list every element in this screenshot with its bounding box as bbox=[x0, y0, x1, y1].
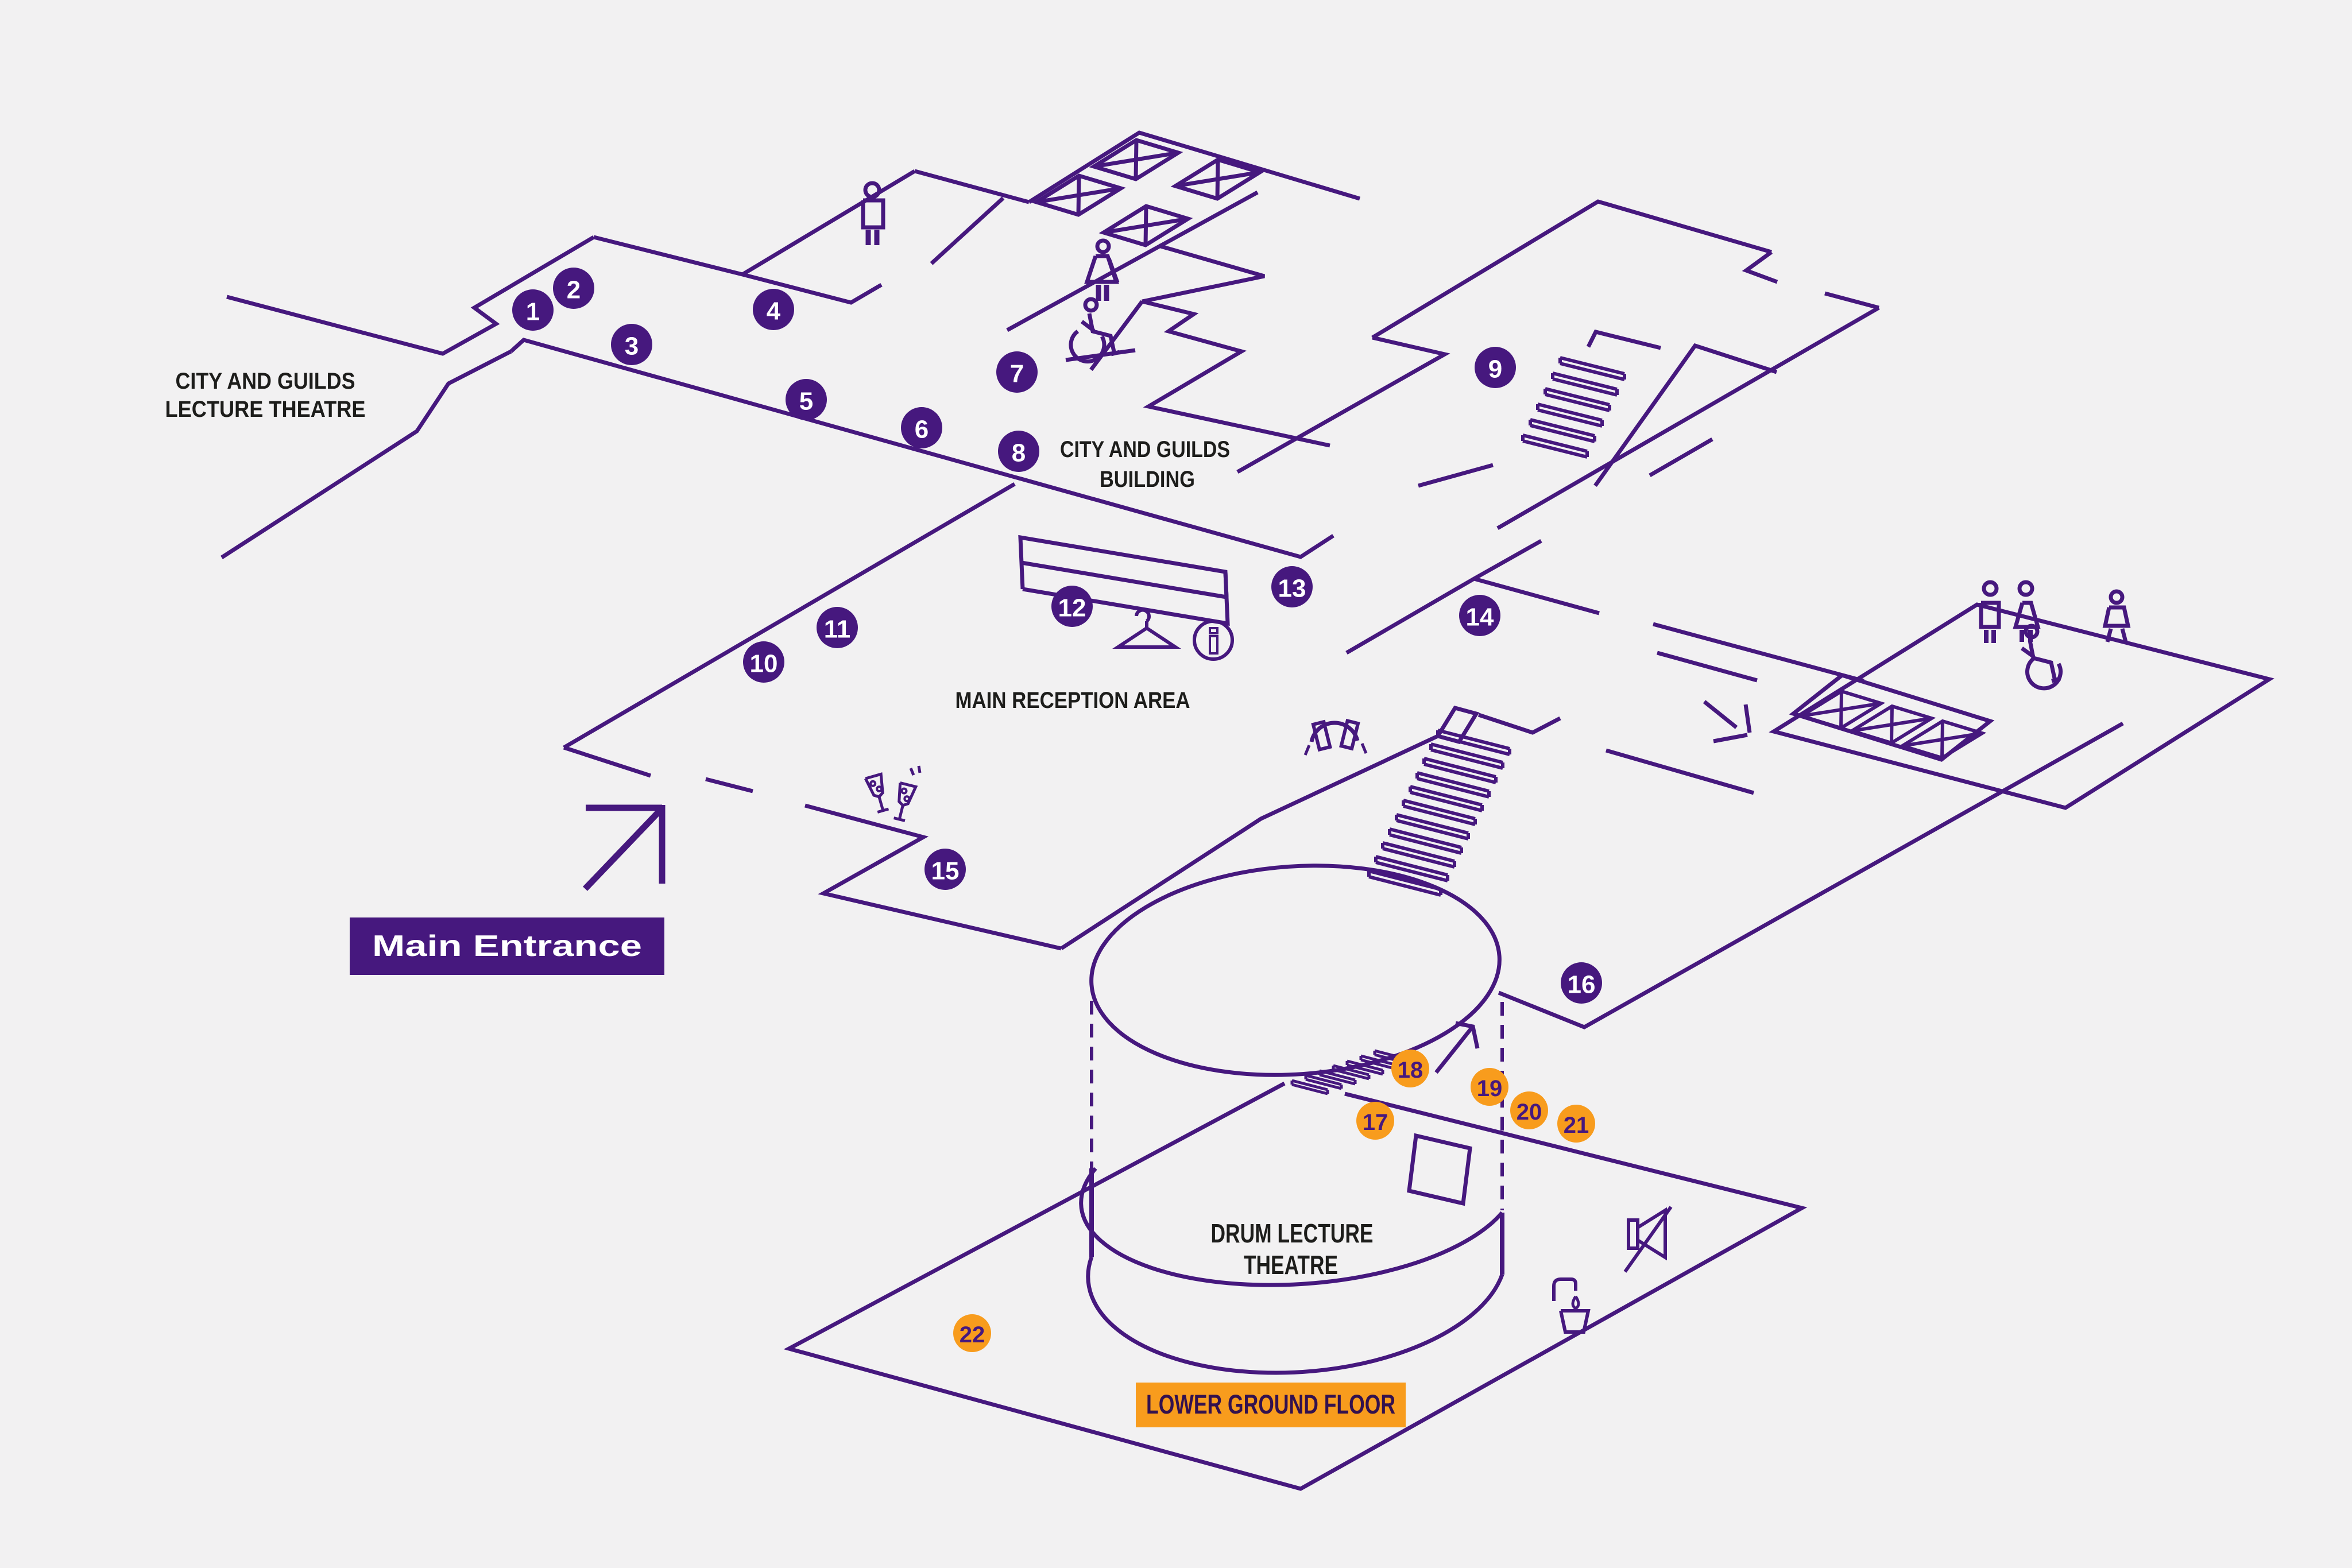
svg-text:21: 21 bbox=[1564, 1113, 1589, 1138]
svg-text:THEATRE: THEATRE bbox=[1244, 1250, 1338, 1280]
svg-text:1: 1 bbox=[526, 298, 540, 326]
svg-text:19: 19 bbox=[1477, 1076, 1503, 1101]
svg-text:8: 8 bbox=[1012, 439, 1026, 467]
svg-text:5: 5 bbox=[799, 388, 813, 416]
svg-text:MAIN RECEPTION AREA: MAIN RECEPTION AREA bbox=[955, 688, 1190, 713]
svg-text:15: 15 bbox=[931, 857, 960, 885]
svg-text:11: 11 bbox=[824, 615, 851, 644]
svg-text:4: 4 bbox=[767, 297, 781, 326]
svg-text:7: 7 bbox=[1010, 360, 1024, 388]
svg-text:22: 22 bbox=[960, 1322, 985, 1348]
svg-text:Main Entrance: Main Entrance bbox=[372, 930, 642, 963]
svg-text:2: 2 bbox=[567, 276, 581, 304]
svg-text:6: 6 bbox=[915, 416, 929, 444]
svg-text:9: 9 bbox=[1488, 355, 1502, 384]
svg-text:12: 12 bbox=[1058, 594, 1086, 622]
svg-text:LOWER GROUND FLOOR: LOWER GROUND FLOOR bbox=[1146, 1389, 1395, 1419]
svg-text:13: 13 bbox=[1278, 575, 1306, 603]
svg-text:14: 14 bbox=[1466, 603, 1494, 632]
svg-text:10: 10 bbox=[750, 650, 778, 678]
svg-text:20: 20 bbox=[1517, 1099, 1542, 1125]
svg-text:BUILDING: BUILDING bbox=[1100, 467, 1195, 492]
svg-text:3: 3 bbox=[625, 332, 639, 361]
svg-text:DRUM LECTURE: DRUM LECTURE bbox=[1211, 1218, 1374, 1248]
svg-text:17: 17 bbox=[1363, 1110, 1388, 1135]
svg-text:CITY AND GUILDS: CITY AND GUILDS bbox=[176, 369, 355, 394]
svg-text:18: 18 bbox=[1398, 1058, 1423, 1083]
svg-text:CITY AND GUILDS: CITY AND GUILDS bbox=[1060, 437, 1230, 462]
svg-text:16: 16 bbox=[1568, 971, 1596, 999]
svg-text:LECTURE THEATRE: LECTURE THEATRE bbox=[165, 397, 366, 422]
